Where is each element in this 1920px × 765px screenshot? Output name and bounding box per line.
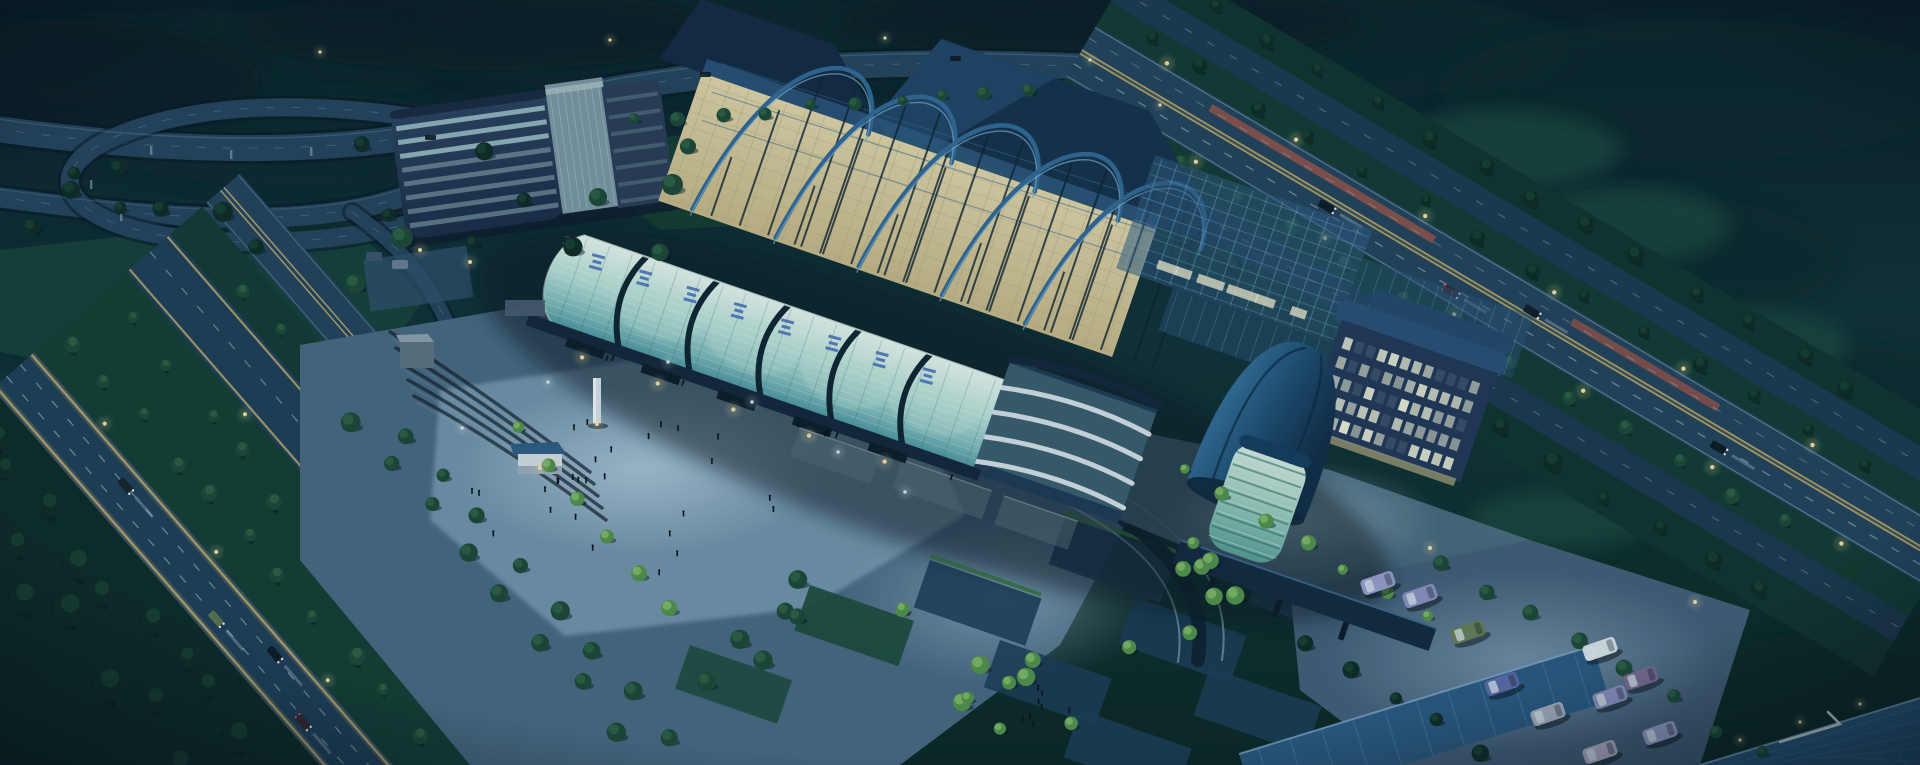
architectural-rendering	[0, 0, 1920, 765]
hero-image-stage: Glass exhibition center campus — aerial …	[0, 0, 1920, 765]
vignette-overlay	[0, 0, 1920, 765]
